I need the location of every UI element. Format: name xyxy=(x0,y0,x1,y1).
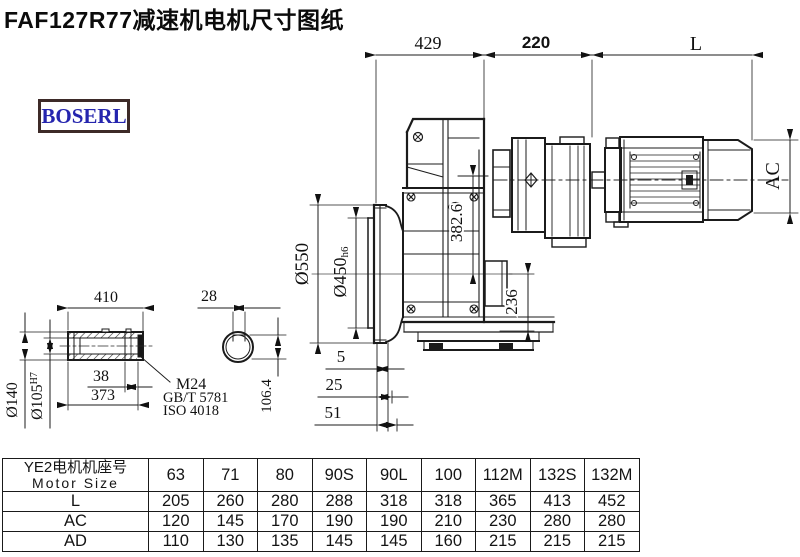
dim-382-6: 382.6 xyxy=(447,204,466,242)
dim-373: 373 xyxy=(91,387,115,404)
dim-38: 38 xyxy=(93,368,109,385)
cell: 110 xyxy=(149,532,204,552)
column-header: 112M xyxy=(476,459,531,492)
dim-51: 51 xyxy=(325,403,342,422)
cell: 413 xyxy=(530,492,585,512)
column-header: 80 xyxy=(258,459,313,492)
cell: 280 xyxy=(530,512,585,532)
table-header-cn: YE2电机机座号 xyxy=(3,460,148,476)
motor-size-table: YE2电机机座号 Motor Size 63 71 80 90S 90L 100… xyxy=(2,458,640,552)
table-header-en: Motor Size xyxy=(3,476,148,491)
dim-25: 25 xyxy=(326,375,343,394)
dim-dia105H7: Ø105H7 xyxy=(29,372,46,420)
cell: 365 xyxy=(476,492,531,512)
cell: 190 xyxy=(367,512,422,532)
table-header-motor-size: YE2电机机座号 Motor Size xyxy=(3,459,149,492)
cell: 215 xyxy=(476,532,531,552)
dim-dia450h6: Ø450h6 xyxy=(330,246,351,298)
cell: 120 xyxy=(149,512,204,532)
table-row-L: L 205 260 280 288 318 318 365 413 452 xyxy=(3,492,640,512)
dim-dia550: Ø550 xyxy=(292,243,313,285)
row-label: AD xyxy=(3,532,149,552)
column-header: 132S xyxy=(530,459,585,492)
dim-236: 236 xyxy=(502,289,521,315)
dim-5: 5 xyxy=(337,347,346,366)
dim-429: 429 xyxy=(415,33,442,53)
cell: 318 xyxy=(367,492,422,512)
cell: 130 xyxy=(203,532,258,552)
cell: 145 xyxy=(367,532,422,552)
table-row-AD: AD 110 130 135 145 145 160 215 215 215 xyxy=(3,532,640,552)
row-label: L xyxy=(3,492,149,512)
label-std-iso: ISO 4018 xyxy=(163,403,219,419)
cell: 288 xyxy=(312,492,367,512)
technical-drawing: 429 220 L Ø550 Ø450h6 382.6 236 AC 5 25 … xyxy=(0,0,800,457)
cell: 215 xyxy=(585,532,640,552)
dimension-labels: 429 220 L Ø550 Ø450h6 382.6 236 AC 5 25 … xyxy=(4,33,784,422)
column-header: 90S xyxy=(312,459,367,492)
cell: 452 xyxy=(585,492,640,512)
table-row-AC: AC 120 145 170 190 190 210 230 280 280 xyxy=(3,512,640,532)
cell: 260 xyxy=(203,492,258,512)
cell: 160 xyxy=(421,532,476,552)
cell: 190 xyxy=(312,512,367,532)
cell: 280 xyxy=(258,492,313,512)
row-label: AC xyxy=(3,512,149,532)
cell: 318 xyxy=(421,492,476,512)
column-header: 90L xyxy=(367,459,422,492)
column-header: 71 xyxy=(203,459,258,492)
cell: 280 xyxy=(585,512,640,532)
cell: 170 xyxy=(258,512,313,532)
cell: 230 xyxy=(476,512,531,532)
dim-L: L xyxy=(690,33,702,55)
cell: 210 xyxy=(421,512,476,532)
page: FAF127R77减速机电机尺寸图纸 BOSERL xyxy=(0,0,800,557)
dim-28: 28 xyxy=(201,288,217,305)
dim-dia140: Ø140 xyxy=(4,382,21,418)
dim-410: 410 xyxy=(94,289,118,306)
drawing-linework xyxy=(20,55,798,431)
cell: 205 xyxy=(149,492,204,512)
cell: 145 xyxy=(203,512,258,532)
column-header: 100 xyxy=(421,459,476,492)
dim-220: 220 xyxy=(522,33,550,52)
cell: 135 xyxy=(258,532,313,552)
cell: 145 xyxy=(312,532,367,552)
column-header: 63 xyxy=(149,459,204,492)
cell: 215 xyxy=(530,532,585,552)
dim-AC: AC xyxy=(762,162,784,190)
dim-106-4: 106.4 xyxy=(259,379,275,413)
column-header: 132M xyxy=(585,459,640,492)
